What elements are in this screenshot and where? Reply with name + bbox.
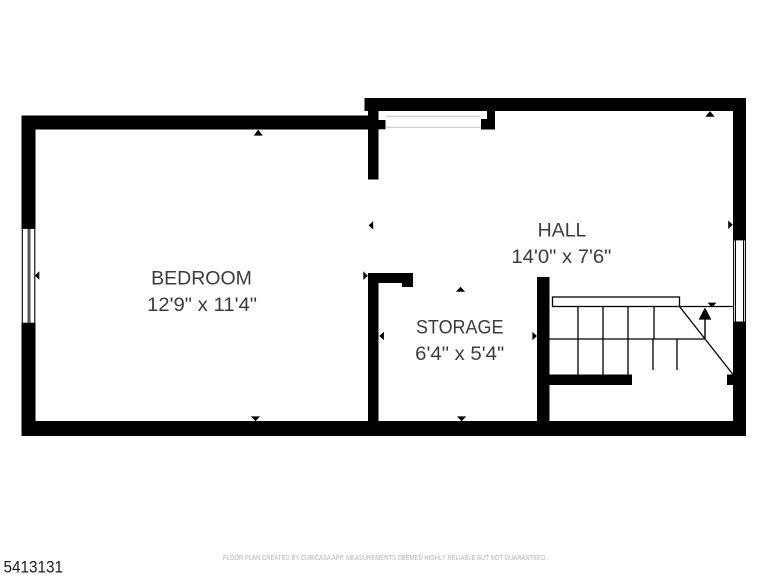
- svg-text:12'9" x 11'4": 12'9" x 11'4": [147, 294, 257, 316]
- svg-text:BEDROOM: BEDROOM: [151, 267, 252, 289]
- svg-text:STORAGE: STORAGE: [416, 317, 504, 339]
- svg-text:5413131: 5413131: [4, 558, 64, 576]
- svg-text:14'0" x 7'6": 14'0" x 7'6": [511, 246, 611, 268]
- svg-text:FLOOR PLAN CREATED BY CUBICASA: FLOOR PLAN CREATED BY CUBICASA APP. MEAS…: [223, 553, 547, 562]
- svg-text:HALL: HALL: [538, 220, 587, 242]
- svg-text:6'4" x 5'4": 6'4" x 5'4": [415, 343, 504, 365]
